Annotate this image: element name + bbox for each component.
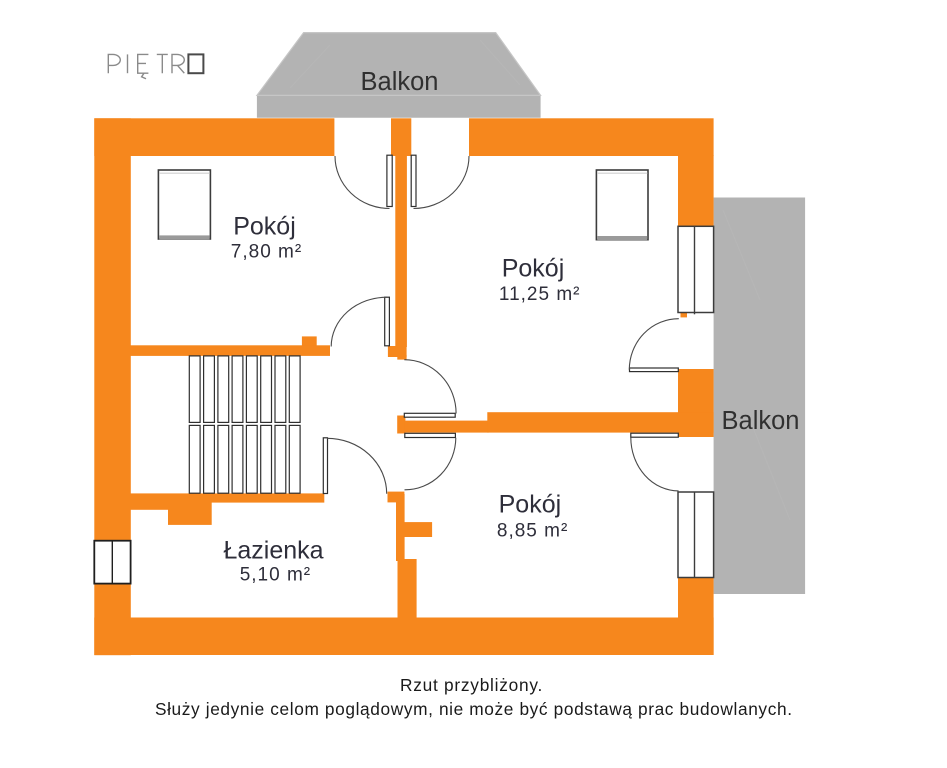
svg-text:Służy jedynie celom poglądowym: Służy jedynie celom poglądowym, nie może… xyxy=(155,699,793,719)
svg-text:8,85 m²: 8,85 m² xyxy=(497,520,568,541)
svg-text:Pokój: Pokój xyxy=(233,213,296,241)
svg-text:Balkon: Balkon xyxy=(361,68,439,96)
svg-text:11,25 m²: 11,25 m² xyxy=(499,284,581,305)
svg-text:Balkon: Balkon xyxy=(722,407,800,435)
svg-text:Pokój: Pokój xyxy=(499,491,562,519)
svg-text:Rzut przybliżony.: Rzut przybliżony. xyxy=(400,675,543,695)
svg-text:7,80 m²: 7,80 m² xyxy=(231,242,302,263)
svg-text:Pokój: Pokój xyxy=(502,255,565,283)
svg-text:5,10 m²: 5,10 m² xyxy=(240,564,311,585)
svg-text:Łazienka: Łazienka xyxy=(223,537,323,565)
